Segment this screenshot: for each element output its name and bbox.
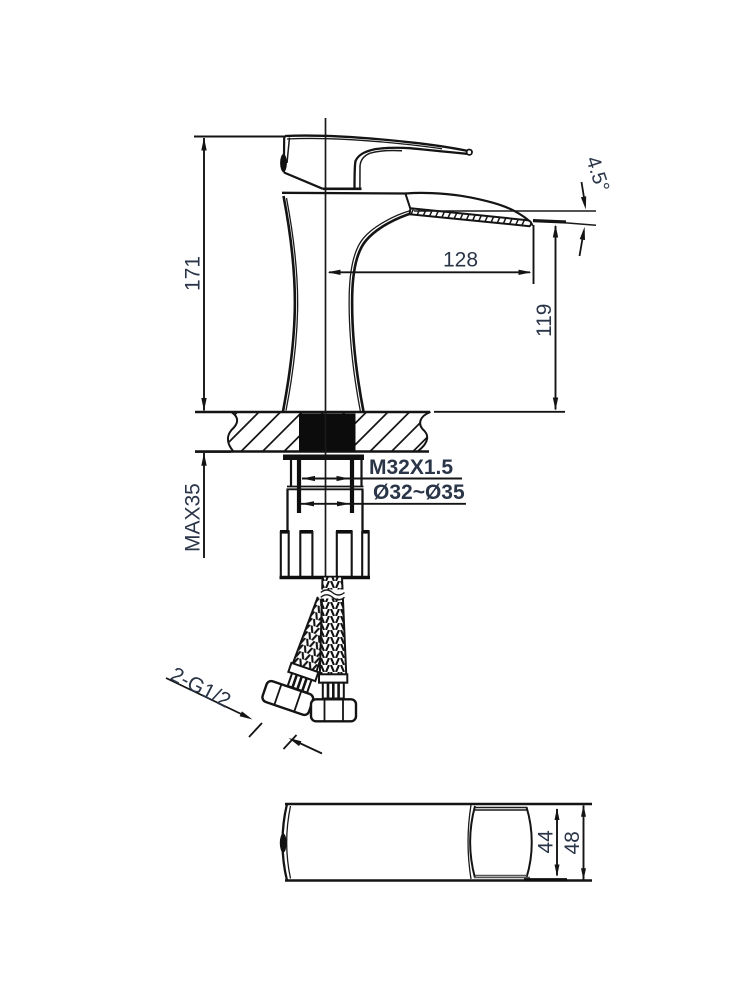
svg-text:128: 128 xyxy=(443,249,478,272)
svg-text:44: 44 xyxy=(535,830,558,854)
svg-text:171: 171 xyxy=(182,256,205,291)
svg-text:119: 119 xyxy=(533,304,556,337)
svg-text:MAX35: MAX35 xyxy=(182,483,205,552)
svg-text:48: 48 xyxy=(561,831,584,854)
svg-text:Ø32~Ø35: Ø32~Ø35 xyxy=(373,481,465,504)
svg-text:M32X1.5: M32X1.5 xyxy=(369,456,453,479)
